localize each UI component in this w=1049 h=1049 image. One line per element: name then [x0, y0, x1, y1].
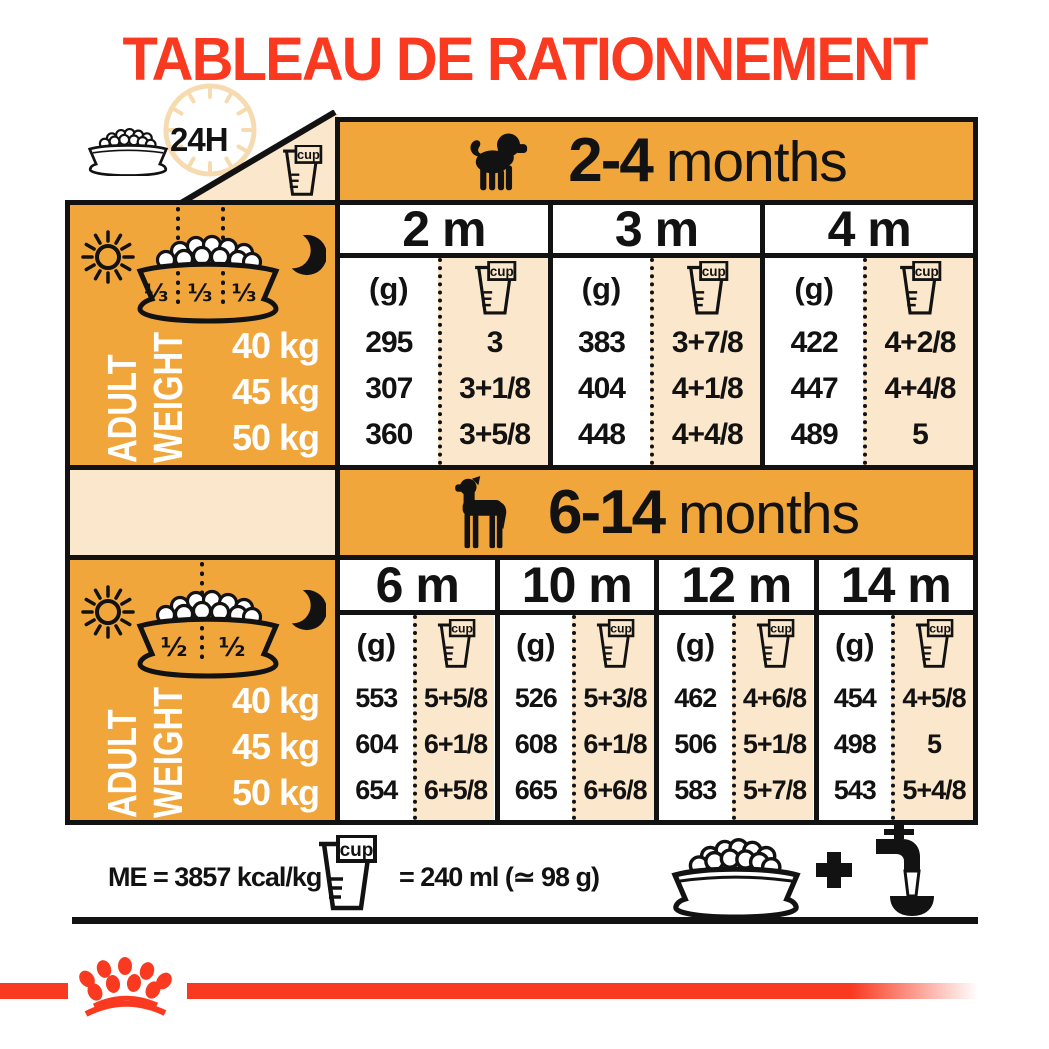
cup-label: cup	[297, 147, 320, 162]
svg-text:cup: cup	[929, 622, 951, 636]
section2-age-range: 6-14 months	[548, 482, 859, 544]
weight-45kg: 45 kg	[232, 369, 319, 415]
kibble-bowl-icon	[655, 832, 817, 918]
grams-value: 383	[578, 320, 625, 366]
adult-weight-label-line1: ADULT	[102, 709, 143, 818]
age-range-bold: 6-14	[548, 482, 664, 544]
cups-value: 5	[912, 412, 928, 458]
measuring-cup-icon: cup	[473, 261, 517, 318]
puppy-icon	[466, 128, 528, 194]
cups-value: 3	[487, 320, 503, 366]
grams-unit-label: (g)	[582, 258, 622, 320]
adult-weight-label-line1: ADULT	[102, 354, 143, 463]
adult-weight-label-line2: WEIGHT	[148, 687, 189, 818]
measuring-cup-icon: cup	[914, 619, 954, 671]
grams-unit-label: (g)	[676, 615, 716, 675]
weight-45kg: 45 kg	[232, 724, 319, 770]
grams-value: 543	[834, 767, 876, 813]
measuring-cup-icon: cup	[685, 261, 729, 318]
age-range-bold: 2-4	[568, 130, 652, 192]
month-header: 4 m	[765, 205, 973, 258]
grams-unit-label: (g)	[516, 615, 556, 675]
energy-value: ME = 3857 kcal/kg	[108, 864, 321, 891]
cups-value: 4+2/8	[885, 320, 956, 366]
grams-value: 462	[674, 675, 716, 721]
age-range-unit: months	[666, 134, 847, 191]
measuring-cup-icon: cup	[316, 835, 378, 915]
month-header: 6 m	[340, 560, 495, 615]
cups-value: 5+4/8	[902, 767, 965, 813]
cups-value: 6+5/8	[424, 767, 487, 813]
grams-value: 422	[791, 320, 838, 366]
portion-1: ⅓	[144, 279, 169, 307]
cups-value: 5+3/8	[583, 675, 646, 721]
grams-value: 654	[355, 767, 397, 813]
grams-value: 454	[834, 675, 876, 721]
grams-value: 604	[355, 721, 397, 767]
royal-canin-crown-logo	[58, 948, 198, 1033]
measuring-cup-icon: cup	[595, 619, 635, 671]
cups-value: 4+4/8	[672, 412, 743, 458]
weight-40kg: 40 kg	[232, 678, 319, 724]
portion-2: ⅓	[188, 279, 213, 307]
cups-value: 3+1/8	[459, 366, 530, 412]
measuring-cup-icon: cup	[436, 619, 476, 671]
cups-value: 4+5/8	[902, 675, 965, 721]
moon-icon	[282, 586, 326, 634]
grams-value: 506	[674, 721, 716, 767]
moon-icon	[282, 231, 326, 279]
month-header: 3 m	[553, 205, 761, 258]
column-6m: 6 m (g) 553 604 654	[340, 560, 495, 820]
month-header: 14 m	[819, 560, 974, 615]
cups-value: 5+1/8	[743, 721, 806, 767]
svg-text:cup: cup	[489, 264, 513, 279]
weight-50kg: 50 kg	[232, 415, 319, 461]
cups-value: 6+6/8	[583, 767, 646, 813]
section2-month-columns: 6 m (g) 553 604 654	[340, 560, 973, 820]
measuring-cup-icon: cup	[755, 619, 795, 671]
cup-equivalence: = 240 ml (≃ 98 g)	[399, 864, 599, 891]
table-2-4-months: ⅓ ⅓ ⅓ ADULT WEIGHT 40 kg 45 kg 50 kg 2 m	[65, 200, 978, 470]
grams-value: 553	[355, 675, 397, 721]
column-3m: 3 m (g) 383 404 448	[548, 205, 761, 465]
divider-rule	[72, 917, 978, 924]
adult-dog-icon	[454, 476, 512, 550]
grams-value: 608	[515, 721, 557, 767]
svg-text:cup: cup	[702, 264, 726, 279]
age-range-unit: months	[678, 486, 859, 543]
weight-rows: 40 kg 45 kg 50 kg	[232, 323, 319, 461]
svg-text:cup: cup	[915, 264, 939, 279]
measuring-cup-icon: cup	[281, 145, 323, 199]
column-14m: 14 m (g) 454 498 543	[814, 560, 974, 820]
portion-bowl-thirds-icon: ⅓ ⅓ ⅓	[128, 205, 288, 330]
grams-unit-label: (g)	[794, 258, 834, 320]
cups-value: 3+5/8	[459, 412, 530, 458]
grams-value: 489	[791, 412, 838, 458]
portion-1: ½	[161, 633, 188, 663]
month-header: 12 m	[659, 560, 814, 615]
faucet-icon	[856, 824, 938, 922]
weight-rows: 40 kg 45 kg 50 kg	[232, 678, 319, 816]
grams-value: 295	[365, 320, 412, 366]
grams-unit-label: (g)	[357, 615, 397, 675]
month-header: 10 m	[500, 560, 655, 615]
grams-value: 498	[834, 721, 876, 767]
section2-left-panel: ½ ½ ADULT WEIGHT 40 kg 45 kg 50 kg	[70, 560, 340, 820]
grams-value: 447	[791, 366, 838, 412]
feeding-guide-page: TABLEAU DE RATIONNEMENT 24H	[0, 0, 1049, 1049]
section2-header-spacer	[70, 470, 340, 555]
grams-value: 404	[578, 366, 625, 412]
measuring-cup-icon: cup	[898, 261, 942, 318]
column-4m: 4 m (g) 422 447 489	[760, 205, 973, 465]
grams-value: 360	[365, 412, 412, 458]
cups-value: 6+1/8	[424, 721, 487, 767]
month-header: 2 m	[340, 205, 548, 258]
svg-text:cup: cup	[610, 622, 632, 636]
cups-value: 5+5/8	[424, 675, 487, 721]
section1-left-panel: ⅓ ⅓ ⅓ ADULT WEIGHT 40 kg 45 kg 50 kg	[70, 205, 340, 465]
kibble-bowl-icon	[82, 122, 174, 176]
table-6-14-months: ½ ½ ADULT WEIGHT 40 kg 45 kg 50 kg 6 m (…	[65, 555, 978, 825]
column-12m: 12 m (g) 462 506 583	[654, 560, 814, 820]
plus-icon	[816, 852, 852, 888]
svg-text:cup: cup	[770, 622, 792, 636]
grams-value: 583	[674, 767, 716, 813]
adult-weight-label-line2: WEIGHT	[148, 332, 189, 463]
svg-text:cup: cup	[340, 840, 374, 861]
grams-unit-label: (g)	[369, 258, 409, 320]
cups-value: 5+7/8	[743, 767, 806, 813]
section1-header: 2-4 months	[335, 117, 978, 200]
section1-age-range: 2-4 months	[568, 130, 847, 192]
section1-month-columns: 2 m (g) 295 307 360	[340, 205, 973, 465]
column-2m: 2 m (g) 295 307 360	[340, 205, 548, 465]
grams-value: 307	[365, 366, 412, 412]
column-10m: 10 m (g) 526 608 665	[495, 560, 655, 820]
grams-value: 665	[515, 767, 557, 813]
svg-text:cup: cup	[451, 622, 473, 636]
portion-3: ⅓	[232, 279, 257, 307]
cups-value: 6+1/8	[583, 721, 646, 767]
section2-header: 6-14 months	[65, 470, 978, 555]
grams-unit-label: (g)	[835, 615, 875, 675]
portion-2: ½	[219, 633, 246, 663]
cups-value: 4+1/8	[672, 366, 743, 412]
cups-value: 5	[927, 721, 941, 767]
grams-value: 448	[578, 412, 625, 458]
weight-40kg: 40 kg	[232, 323, 319, 369]
red-stripe-right	[187, 983, 978, 999]
cups-value: 4+6/8	[743, 675, 806, 721]
grams-value: 526	[515, 675, 557, 721]
portion-bowl-halves-icon: ½ ½	[128, 560, 288, 685]
cups-value: 4+4/8	[885, 366, 956, 412]
weight-50kg: 50 kg	[232, 770, 319, 816]
cups-value: 3+7/8	[672, 320, 743, 366]
